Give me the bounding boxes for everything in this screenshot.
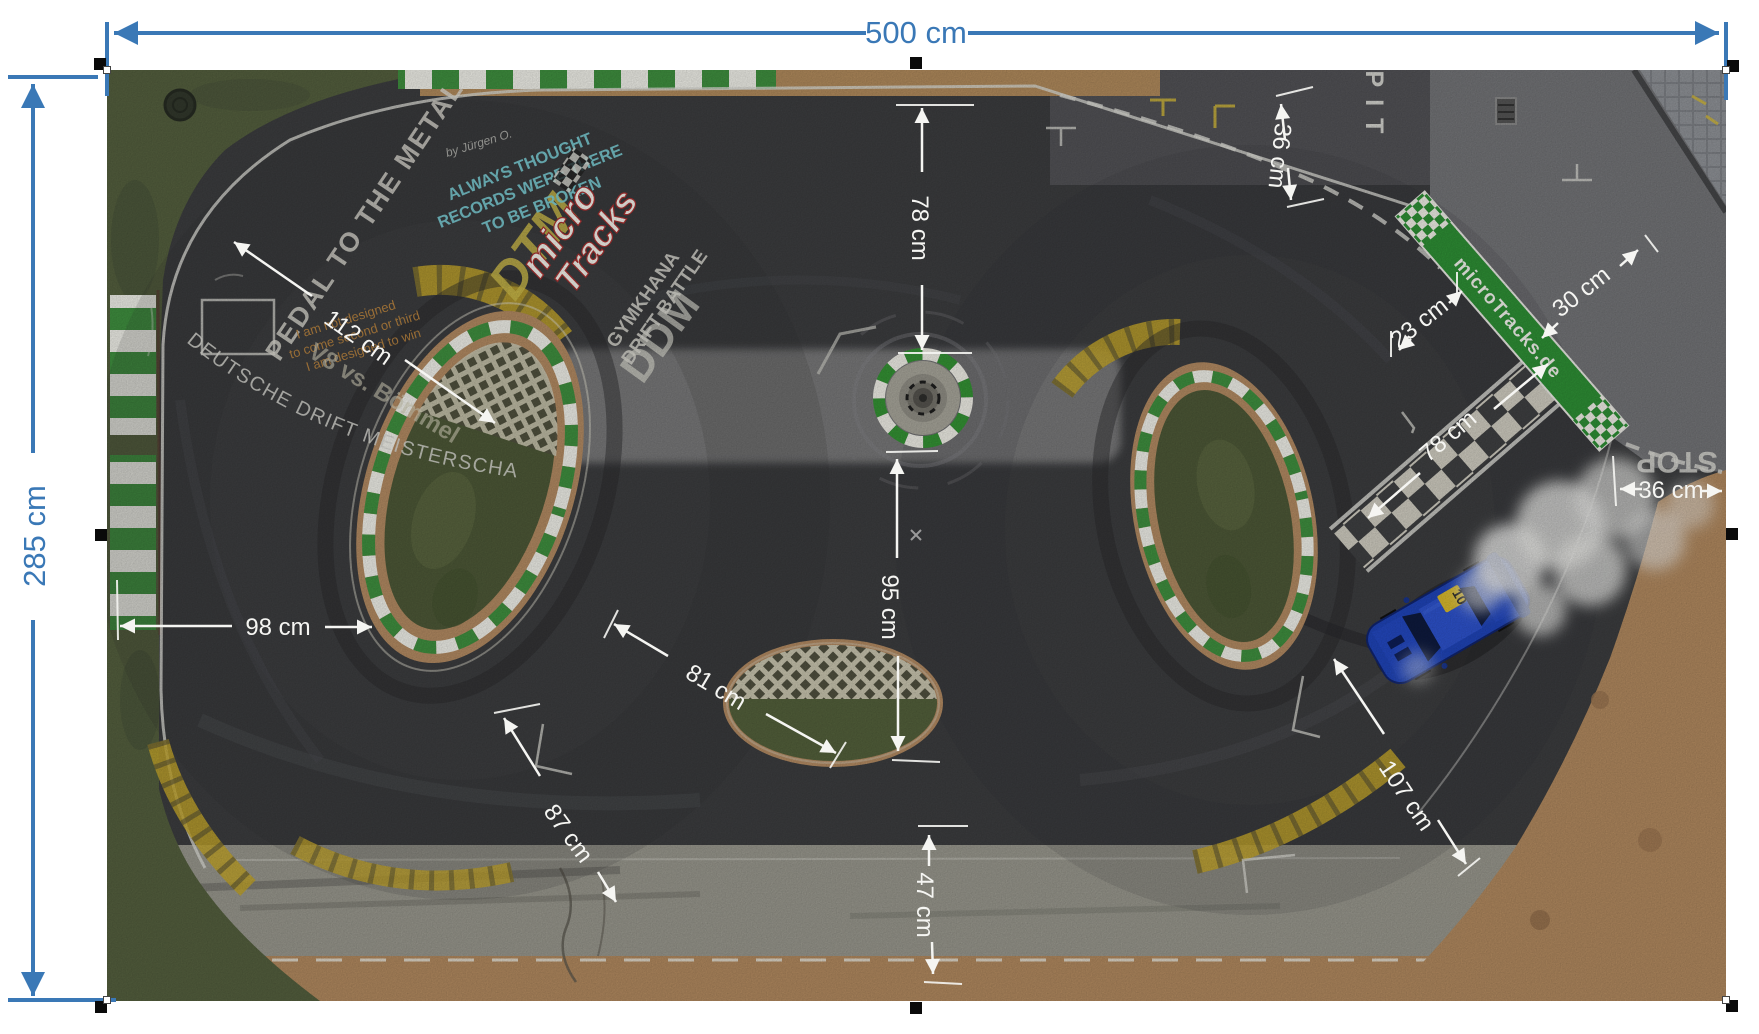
dim-label-width-500: 500 cm bbox=[865, 15, 967, 50]
track-image[interactable]: PEDAL TO THE METAL DTM DDM ALWAYS THOUGH… bbox=[0, 0, 1726, 1001]
dim-label-right-36: 36 cm bbox=[1638, 477, 1703, 504]
dim-label-top-78: 78 cm bbox=[906, 195, 933, 260]
crop-corner-bottom-left[interactable] bbox=[104, 997, 111, 1004]
crop-corner-top-right[interactable] bbox=[1723, 67, 1730, 74]
dim-label-mid-95: 95 cm bbox=[876, 574, 903, 639]
dim-label-height-285: 285 cm bbox=[17, 485, 52, 587]
crop-corner-top-left[interactable] bbox=[104, 67, 111, 74]
selection-handle-bottom-mid[interactable] bbox=[910, 1002, 922, 1014]
crop-corner-bottom-right[interactable] bbox=[1723, 997, 1730, 1004]
editor-canvas: PEDAL TO THE METAL DTM DDM ALWAYS THOUGH… bbox=[0, 0, 1759, 1034]
selection-handle-top-mid[interactable] bbox=[910, 57, 922, 69]
selection-handle-mid-left[interactable] bbox=[95, 529, 107, 541]
dim-label-bottom-47: 47 cm bbox=[911, 872, 938, 937]
dim-label-left-98: 98 cm bbox=[245, 614, 310, 641]
selection-handle-mid-right[interactable] bbox=[1726, 528, 1738, 540]
